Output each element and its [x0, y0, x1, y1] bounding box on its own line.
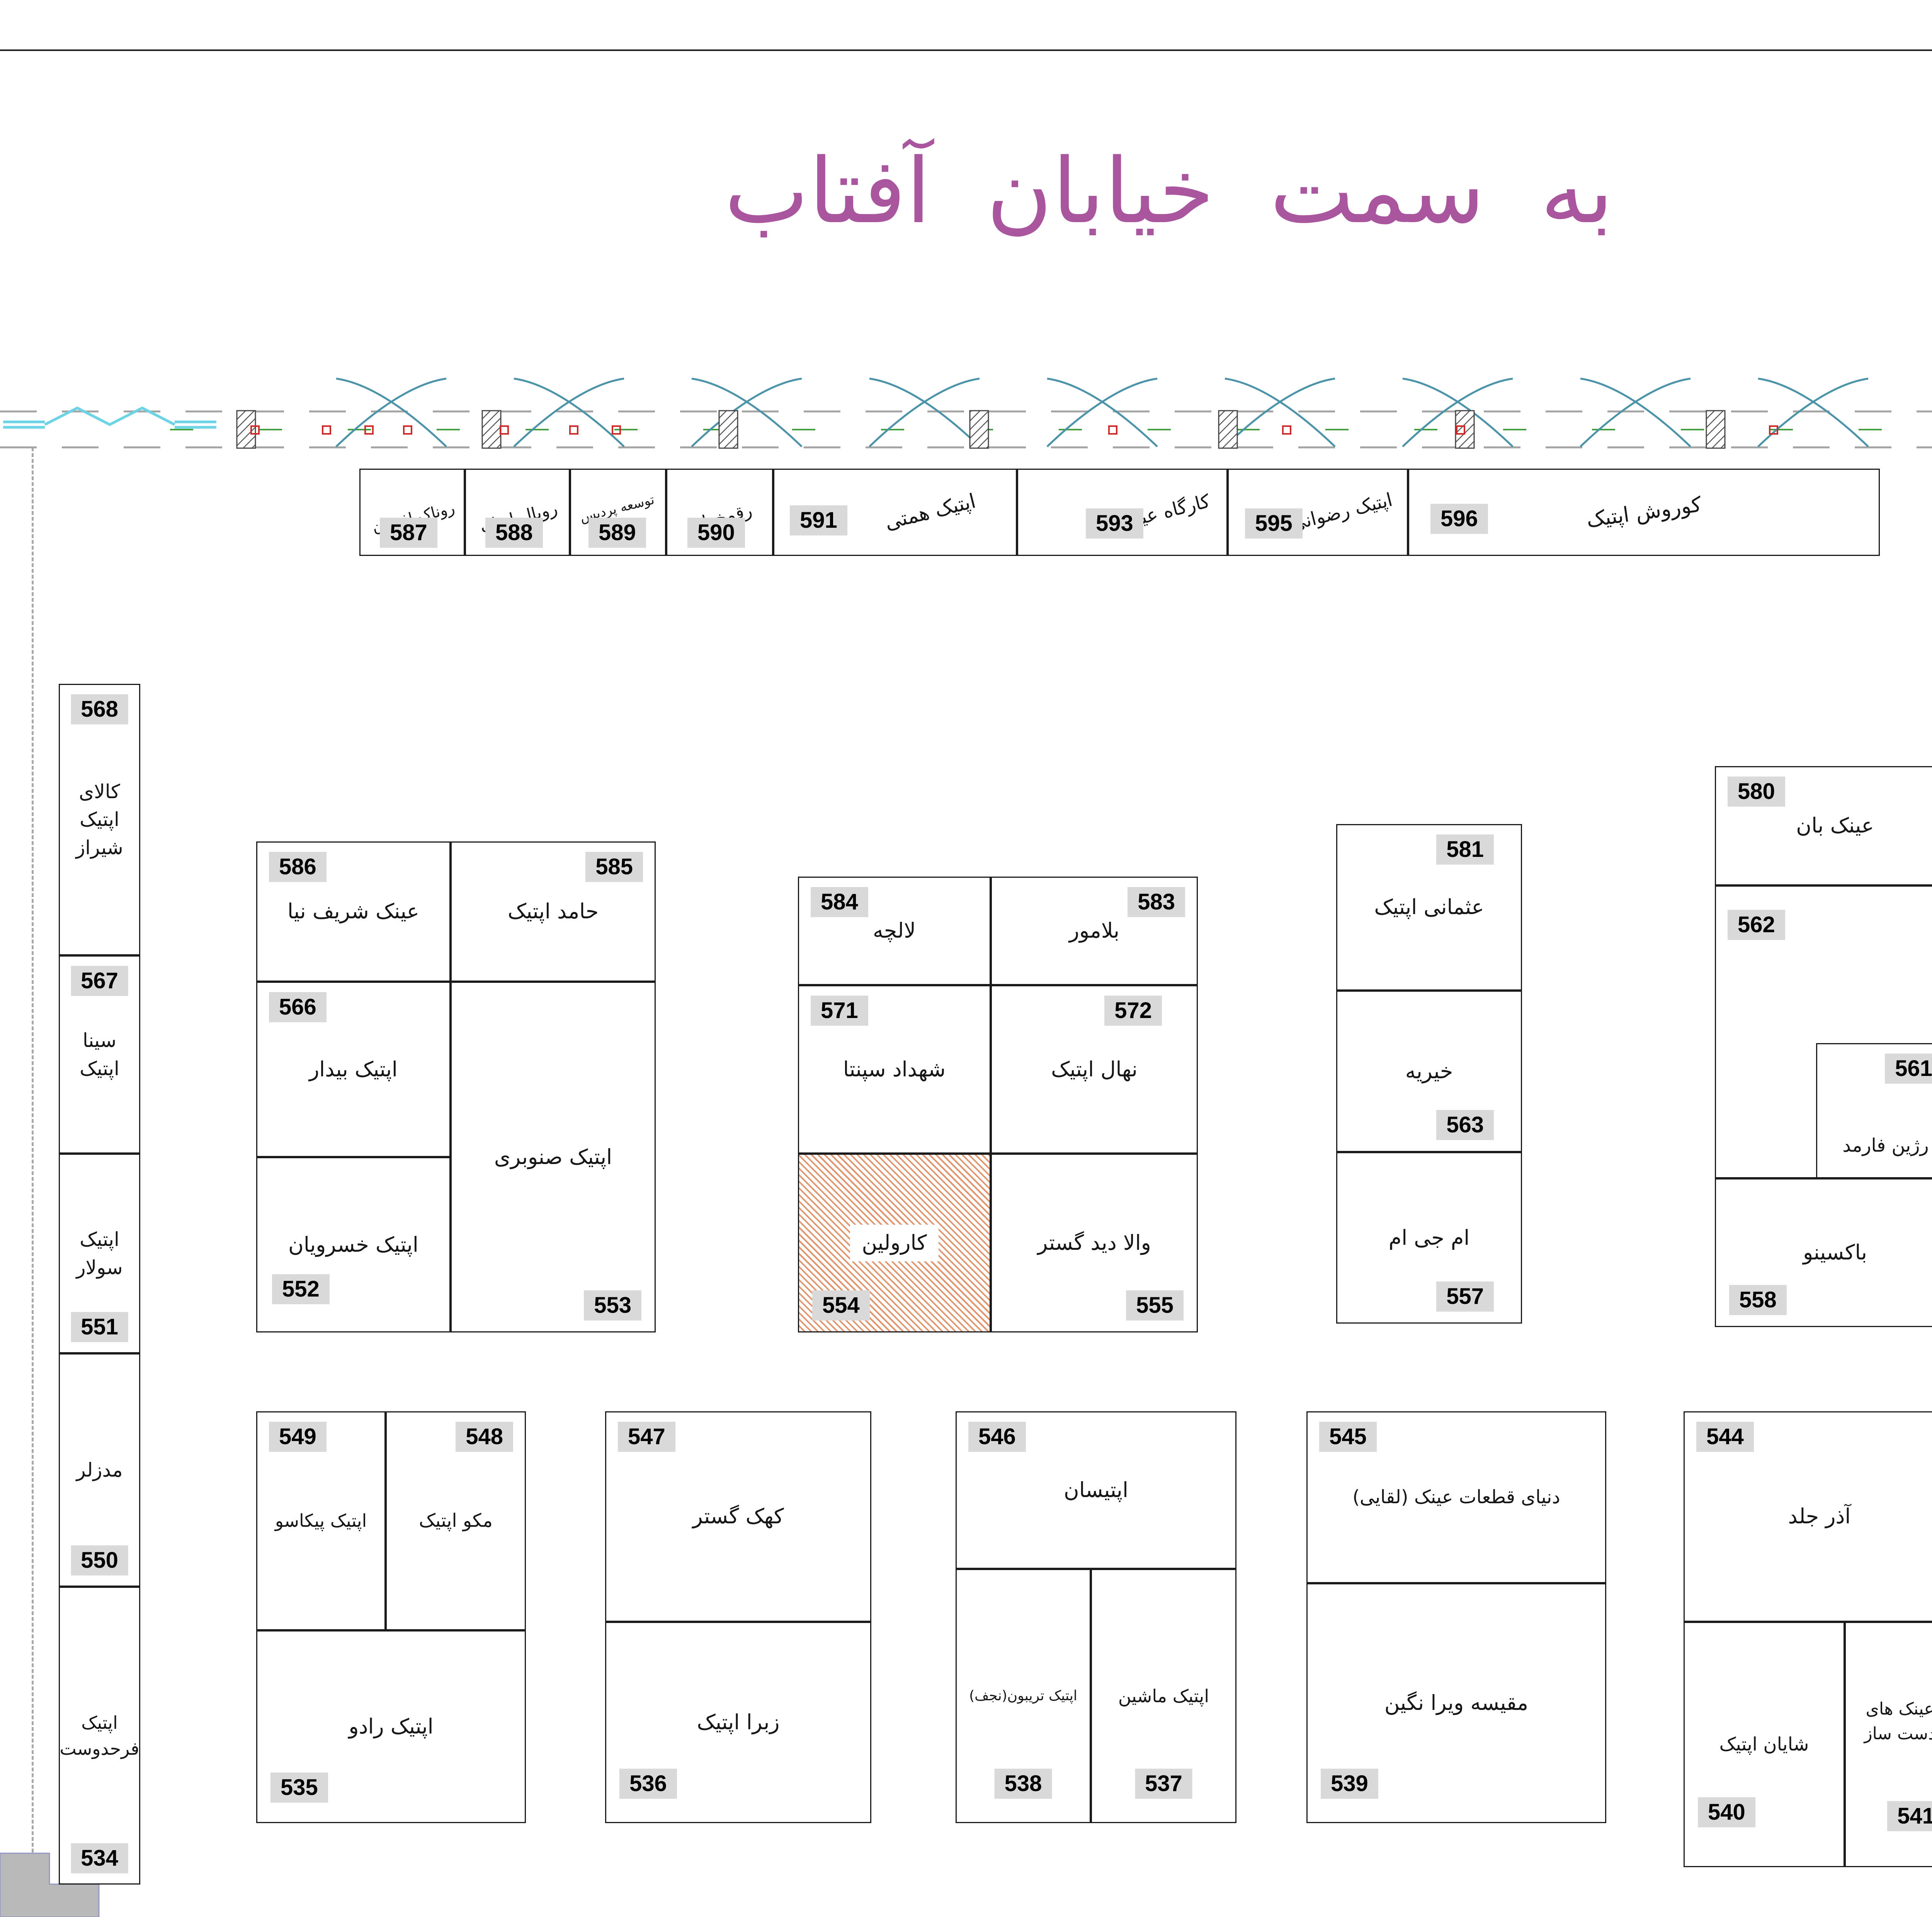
shop-name: کالای اپتیک شیراز: [62, 687, 137, 952]
shop-number-badge: 551: [71, 1312, 128, 1342]
shop-number-badge: 538: [995, 1769, 1052, 1799]
unit-538: اپتیک تریبون(نجف) 538: [956, 1569, 1091, 1823]
unit-581: عثمانی اپتیک 581: [1336, 824, 1522, 991]
unit-591: اپتیک همتی 591: [773, 469, 1017, 556]
shop-number-badge: 589: [588, 518, 646, 548]
shop-number-badge: 535: [270, 1773, 328, 1803]
shop-number-badge: 588: [485, 518, 543, 548]
shop-number-badge: 581: [1436, 834, 1494, 865]
shop-number-badge: 545: [1319, 1422, 1377, 1452]
unit-586: عینک شریف نیا 586: [256, 841, 451, 982]
shop-name: اپتیک همتی: [840, 453, 1021, 571]
shop-number-badge: 536: [619, 1769, 677, 1799]
plan-title: به سمت خیابان آفتاب: [560, 139, 1777, 243]
shop-number-badge: 593: [1086, 508, 1143, 539]
unit-535: اپتیک رادو 535: [256, 1630, 526, 1823]
shop-number-badge: 539: [1321, 1769, 1378, 1799]
shop-number-badge: 591: [790, 505, 847, 535]
unit-555: والا دید گستر 555: [991, 1154, 1198, 1332]
shop-number-badge: 586: [269, 852, 327, 882]
unit-557: ام جی ام 557: [1336, 1152, 1522, 1324]
unit-551: اپتیک سولار 551: [59, 1154, 140, 1353]
shop-number-badge: 562: [1728, 910, 1785, 940]
shop-number-badge: 566: [269, 992, 327, 1022]
shop-number-badge: 547: [618, 1422, 675, 1452]
shop-name: روناک افشان: [355, 461, 470, 563]
unit-567: سینا اپتیک 567: [59, 955, 140, 1154]
shop-number-badge: 596: [1430, 504, 1488, 534]
unit-558: باکسینو 558: [1715, 1178, 1932, 1327]
unit-568: کالای اپتیک شیراز 568: [59, 684, 140, 955]
shop-number-badge: 550: [71, 1545, 128, 1575]
shop-name: نهال اپتیک: [994, 989, 1194, 1150]
shop-number-badge: 541: [1887, 1801, 1932, 1831]
unit-546: اپتیسان 546: [956, 1411, 1236, 1569]
unit-550: مدزلر 550: [59, 1353, 140, 1587]
unit-583: بلامور 583: [991, 877, 1198, 985]
shop-number-badge: 553: [584, 1290, 641, 1320]
shop-number-badge: 549: [269, 1422, 327, 1452]
shop-name: اپتیک فرحدوست: [62, 1590, 137, 1881]
unit-580: عینک بان 580: [1715, 766, 1932, 885]
unit-544: آذر جلد 544: [1684, 1411, 1932, 1622]
shop-number-badge: 568: [71, 694, 128, 724]
unit-537: اپتیک ماشین 537: [1091, 1569, 1236, 1823]
shop-number-badge: 580: [1728, 777, 1785, 807]
shop-name: شایان اپتیک: [1687, 1625, 1841, 1864]
unit-552: اپتیک خسرویان 552: [256, 1157, 451, 1332]
shop-number-badge: 548: [456, 1422, 513, 1452]
unit-584: لالچه 584: [798, 877, 991, 985]
unit-571: شهداد سپنتا 571: [798, 985, 991, 1154]
shop-number-badge: 583: [1128, 887, 1185, 917]
unit-540: شایان اپتیک 540: [1684, 1622, 1845, 1867]
shop-number-badge: 554: [812, 1290, 870, 1320]
unit-534: اپتیک فرحدوست 534: [59, 1587, 140, 1885]
unit-593: کارگاه عینک 593: [1017, 469, 1228, 556]
shop-number-badge: 557: [1436, 1281, 1494, 1312]
shop-number-badge: 546: [968, 1422, 1026, 1452]
shop-number-badge: 595: [1245, 508, 1303, 539]
unit-595: اپتیک رضوانی 595: [1228, 469, 1408, 556]
unit-585: حامد اپتیک 585: [451, 841, 656, 982]
unit-539: مقیسه ویرا نگین 539: [1306, 1583, 1606, 1823]
sheet-border-line: [0, 49, 1932, 51]
shop-number-badge: 537: [1135, 1769, 1192, 1799]
unit-549: اپتیک پیکاسو 549: [256, 1411, 386, 1630]
unit-572: نهال اپتیک 572: [991, 985, 1198, 1154]
unit-596: کوروش اپتیک 596: [1408, 469, 1880, 556]
unit-536: زبرا اپتیک 536: [605, 1622, 871, 1823]
unit-553: اپتیک صنوبری 553: [451, 982, 656, 1332]
shop-number-badge: 534: [71, 1843, 128, 1873]
shop-number-badge: 552: [272, 1274, 330, 1304]
shop-number-badge: 585: [585, 852, 643, 882]
shop-number-badge: 540: [1698, 1797, 1755, 1827]
shop-name: اپتیک صنوبری: [454, 985, 652, 1329]
shop-number-badge: 558: [1729, 1285, 1787, 1315]
unit-566: اپتیک بیدار 566: [256, 982, 451, 1157]
shop-name: رقمخوان: [662, 461, 778, 563]
unit-589: توسعه پردیس ایما 589: [570, 469, 666, 556]
unit-561: رژین فارمد 561: [1816, 1043, 1932, 1178]
shop-number-badge: 555: [1126, 1290, 1184, 1320]
shop-name: رویال اپتیک: [460, 461, 575, 563]
unit-563: خیریه 563: [1336, 991, 1522, 1152]
unit-554: کارولین 554: [798, 1154, 991, 1332]
left-boundary-dashed-line: [32, 447, 34, 1858]
shop-number-badge: 571: [811, 996, 868, 1026]
unit-547: کهک گستر 547: [605, 1411, 871, 1622]
floor-plan: به سمت خیابان آفتاب: [0, 0, 1932, 1917]
unit-545: دنیای قطعات عینک (لقایی) 545: [1306, 1411, 1606, 1583]
column-markers: [237, 411, 1932, 448]
unit-548: مکو اپتیک 548: [386, 1411, 526, 1630]
shop-number-badge: 584: [811, 887, 868, 917]
shop-number-badge: 563: [1436, 1110, 1494, 1140]
red-joint-markers: [251, 426, 1932, 434]
shop-number-badge: 587: [380, 518, 437, 548]
unit-587: روناک افشان 587: [359, 469, 465, 556]
shop-number-badge: 590: [687, 518, 745, 548]
shop-number-badge: 572: [1104, 996, 1162, 1026]
shop-number-badge: 544: [1696, 1422, 1754, 1452]
shop-number-badge: 561: [1885, 1054, 1932, 1084]
unit-590: رقمخوان 590: [666, 469, 773, 556]
unit-541: عینک های دست ساز 541: [1845, 1622, 1932, 1867]
shop-number-badge: 567: [71, 966, 128, 996]
unit-588: رویال اپتیک 588: [465, 469, 570, 556]
